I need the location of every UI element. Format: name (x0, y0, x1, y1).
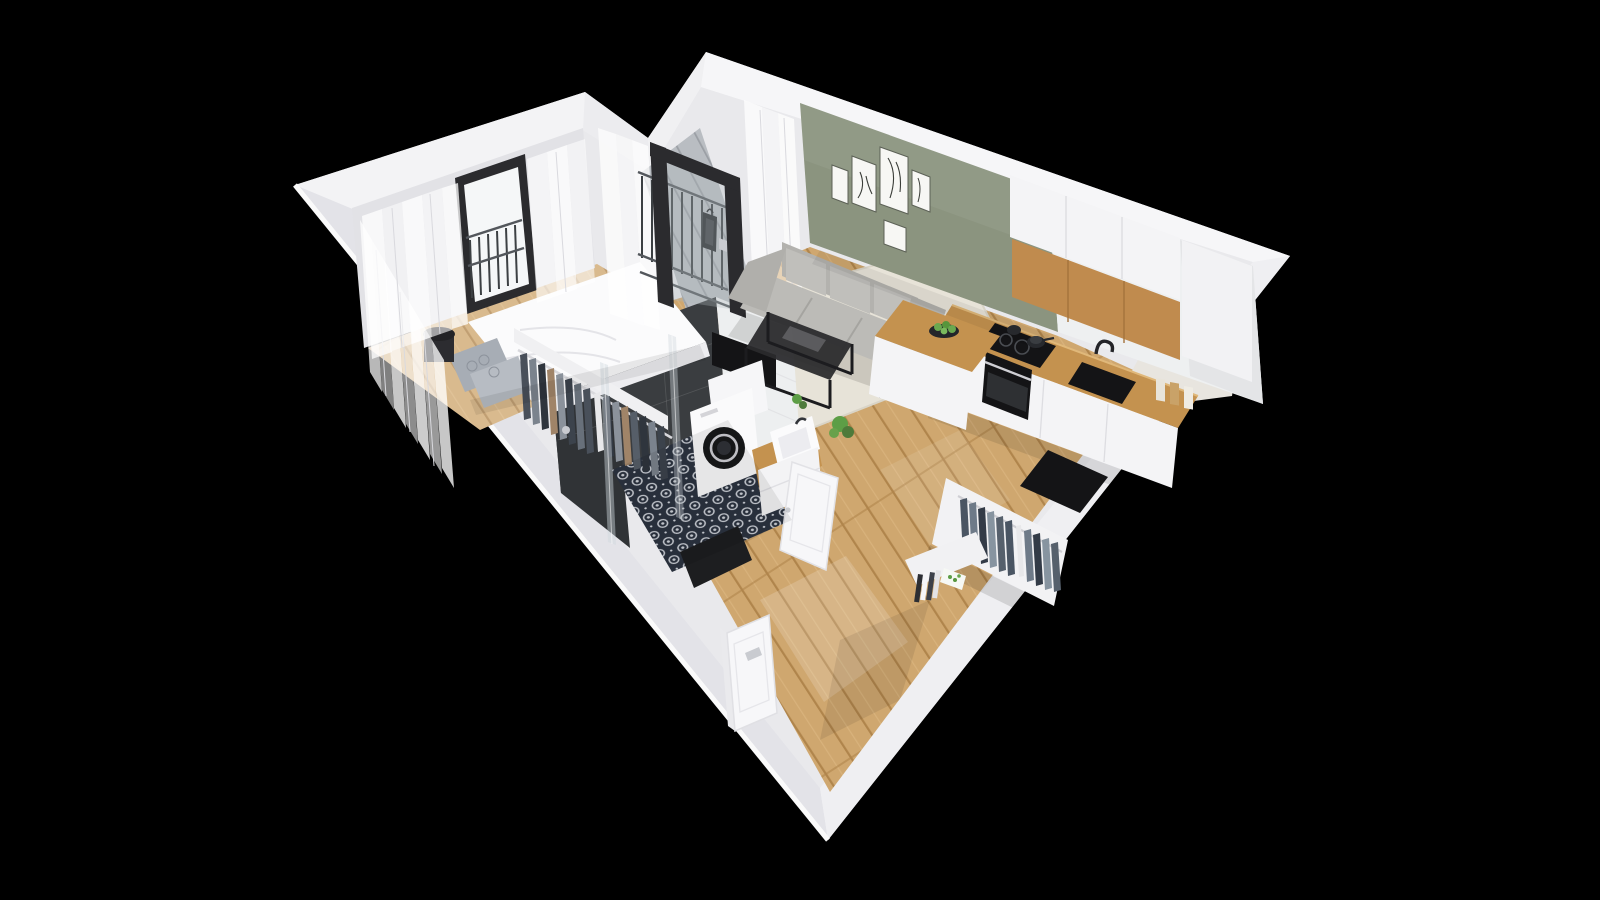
apartment-render (0, 0, 1600, 900)
picture-frame-1 (832, 165, 848, 204)
picture-frame-4 (912, 170, 930, 212)
entrance-door-leaf (727, 615, 777, 731)
bedroom-window (455, 154, 537, 314)
shower-head (562, 426, 570, 434)
picture-frame-2 (852, 156, 876, 212)
entrance-door (720, 615, 777, 731)
